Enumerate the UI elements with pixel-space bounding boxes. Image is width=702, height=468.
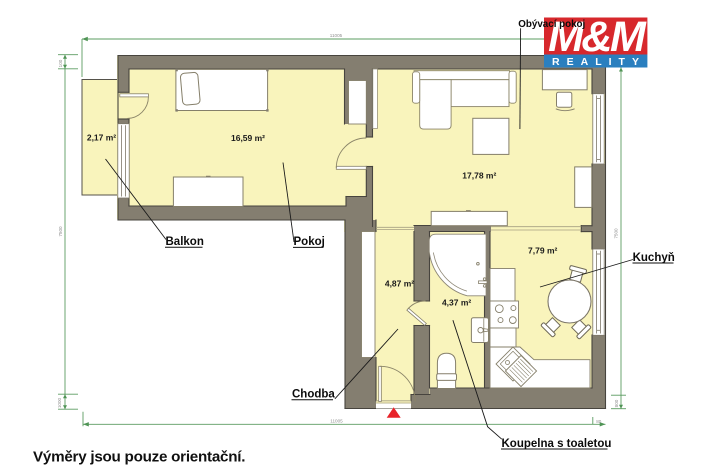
svg-text:17,78 m²: 17,78 m² — [462, 171, 496, 181]
svg-text:Pokoj: Pokoj — [294, 236, 325, 248]
svg-text:Kuchyň: Kuchyň — [633, 252, 675, 264]
svg-text:REALITY: REALITY — [552, 56, 646, 68]
svg-text:1000: 1000 — [57, 397, 62, 408]
svg-text:80: 80 — [596, 419, 602, 424]
svg-text:Výměry jsou pouze orientační.: Výměry jsou pouze orientační. — [33, 449, 245, 466]
svg-text:Obývací pokoj: Obývací pokoj — [518, 19, 585, 30]
svg-text:7500: 7500 — [58, 226, 63, 237]
svg-text:11005: 11005 — [330, 33, 343, 38]
svg-text:7500: 7500 — [614, 228, 619, 239]
svg-text:4,87 m²: 4,87 m² — [385, 279, 414, 289]
svg-text:Chodba: Chodba — [292, 389, 335, 401]
svg-text:16,59 m²: 16,59 m² — [231, 133, 265, 143]
svg-text:4,37 m²: 4,37 m² — [442, 297, 471, 307]
svg-text:Balkon: Balkon — [166, 236, 204, 248]
svg-text:100: 100 — [58, 59, 63, 67]
svg-text:Koupelna s toaletou: Koupelna s toaletou — [502, 438, 612, 450]
svg-text:2,17 m²: 2,17 m² — [87, 133, 116, 143]
svg-text:11005: 11005 — [330, 419, 343, 424]
svg-text:800: 800 — [614, 399, 619, 407]
svg-text:7,79 m²: 7,79 m² — [528, 246, 557, 256]
